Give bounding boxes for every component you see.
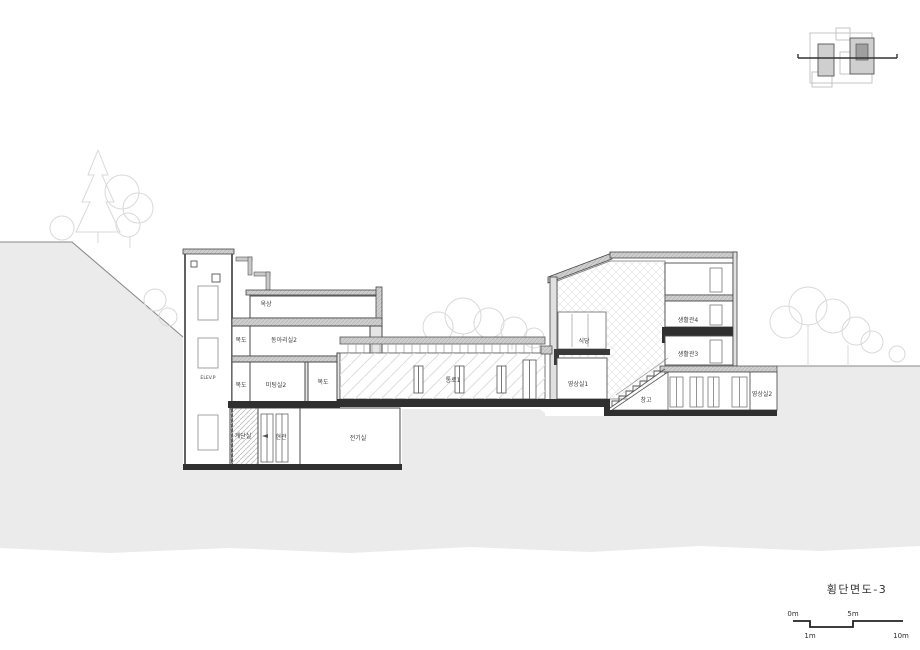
corridor-doors — [670, 377, 747, 407]
room-label-av-room2: 영상실2 — [752, 390, 773, 398]
room-label-storage: 창고 — [640, 396, 652, 404]
room-label-av-room1: 영상실1 — [568, 380, 589, 388]
room-label-dorm-room4: 생활관4 — [678, 316, 699, 324]
tower-roof-slab — [183, 249, 234, 254]
dorm4-box — [665, 301, 733, 327]
roof-stair-hooks — [236, 257, 270, 290]
scale-label-5m: 5m — [847, 610, 858, 618]
scale-label-0m: 0m — [787, 610, 798, 618]
keyplan-cut-block-left — [818, 44, 834, 76]
flat-roof-slab — [610, 252, 737, 258]
room-label-stair-room: 계단실 — [235, 432, 252, 440]
dorm-doors — [710, 268, 722, 363]
scale-bar: 0m 5m 1m 10m — [787, 610, 909, 640]
room-label-rooftop: 옥상 — [260, 300, 272, 308]
title-block: 횡단면도-3 0m 5m 1m 10m — [787, 583, 909, 640]
room-label-electrical-room: 전기실 — [350, 434, 367, 442]
midblock-roof-slab — [246, 290, 380, 295]
room-label-elevator-pit: ELEV.P — [200, 375, 215, 381]
hall-roof-band — [340, 337, 545, 344]
section-drawing: ELEV.P 옥상 복도 동아리실2 복도 미팅실2 복도 계단실 현관 전기실… — [0, 0, 920, 650]
architectural-section-sheet: ELEV.P 옥상 복도 동아리실2 복도 미팅실2 복도 계단실 현관 전기실… — [0, 0, 920, 650]
dorm3-box — [665, 336, 733, 365]
conifer-tree — [76, 150, 120, 232]
keyplan-section-line — [798, 54, 897, 58]
av-room1-box — [557, 358, 607, 399]
drawing-title: 횡단면도-3 — [827, 583, 887, 596]
room-label-corridor-upper: 복도 — [235, 337, 247, 344]
room-label-corridor-lower-right: 복도 — [317, 379, 329, 386]
scale-label-10m: 10m — [893, 632, 909, 640]
room-label-dining: 식당 — [578, 337, 590, 345]
scale-label-1m: 1m — [804, 632, 815, 640]
room-label-corridor-lower-left: 복도 — [235, 382, 247, 389]
room-label-meeting-room2: 미팅실2 — [266, 381, 287, 389]
room-label-passage1: 통로1 — [446, 377, 461, 384]
room-label-club-room2: 동아리실2 — [271, 336, 297, 344]
key-plan — [798, 28, 897, 87]
room-label-entrance: 현관 — [275, 433, 287, 441]
tree-right-group — [770, 287, 905, 366]
shaft-opening — [198, 286, 218, 320]
room-label-dorm-room3: 생활관3 — [678, 350, 699, 358]
